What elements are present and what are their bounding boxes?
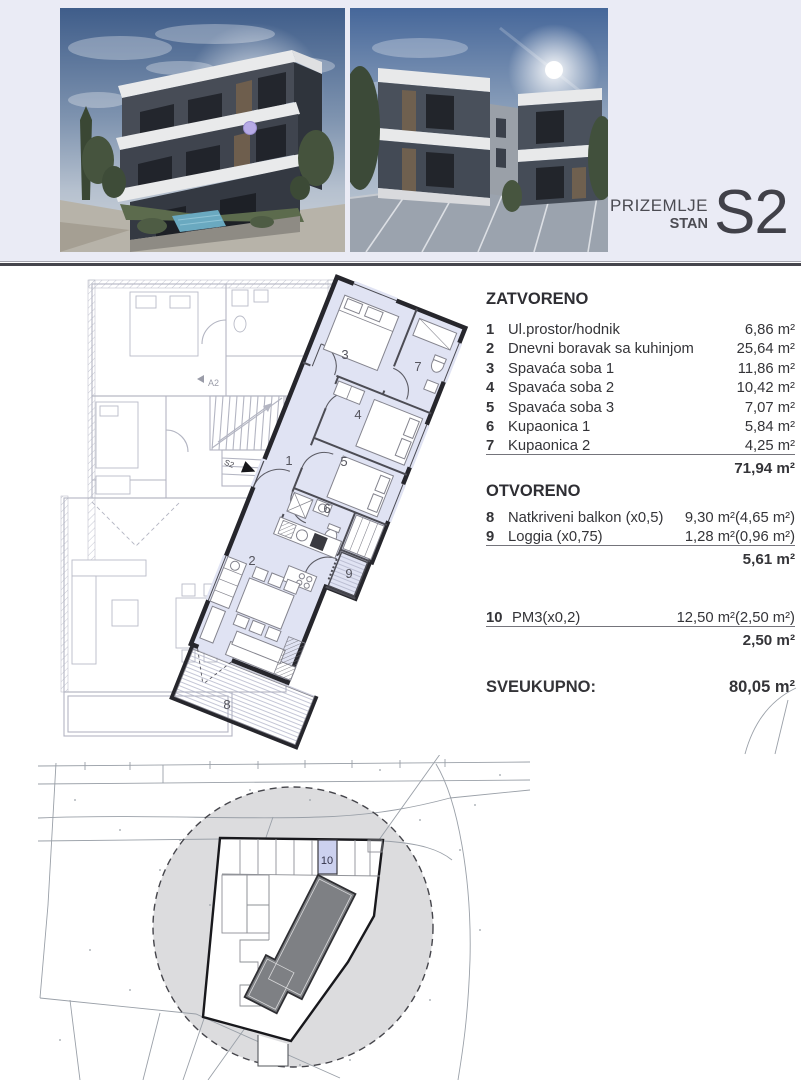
- unit-type-label: STAN: [580, 216, 708, 233]
- entrance-label: S2: [223, 458, 236, 470]
- floor-label: PRIZEMLJE: [580, 196, 708, 216]
- cadastral-fragment: [745, 688, 796, 754]
- unit-code: S2: [714, 182, 788, 244]
- exterior-render-street: [350, 8, 608, 252]
- room-label-9: 9: [345, 566, 352, 581]
- room-label-8: 8: [223, 697, 230, 712]
- parking-spot-label: 10: [321, 855, 333, 867]
- separator-hairline: [0, 261, 801, 262]
- sheet-header: PRIZEMLJE STAN: [580, 196, 708, 232]
- room-label-5: 5: [340, 454, 347, 469]
- neighbor-unit-label: A2: [208, 378, 219, 388]
- room-label-2: 2: [248, 553, 255, 568]
- room-label-4: 4: [354, 407, 361, 422]
- site-plan: 10: [0, 755, 801, 1080]
- building-left-block: [378, 68, 490, 206]
- neighbor-direction-arrow: [197, 375, 204, 383]
- exterior-render-front: [60, 8, 345, 252]
- render-street-illustration: [350, 8, 608, 252]
- room-label-3: 3: [341, 347, 348, 362]
- floor-plan: A2: [0, 266, 801, 755]
- room-label-7: 7: [414, 359, 421, 374]
- room-label-1: 1: [285, 453, 292, 468]
- room-label-6: 6: [323, 501, 330, 516]
- render-front-illustration: [60, 8, 345, 252]
- unit-marker-dot: [244, 122, 257, 135]
